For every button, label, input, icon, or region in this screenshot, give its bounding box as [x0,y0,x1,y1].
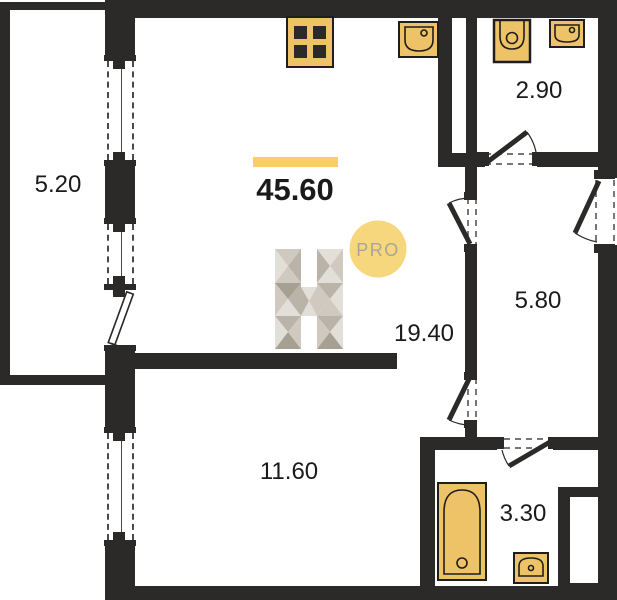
wall-segment [105,0,135,55]
wall-segment [477,152,485,167]
total-area-accent-bar [253,157,338,167]
wall-segment [465,423,477,437]
wall-segment [130,0,617,18]
wall-segment [0,2,112,10]
vent-shaft [452,18,466,153]
wall-segment [558,487,598,497]
balcony-window [107,61,134,160]
window-sill [104,284,136,290]
h-logo-icon [275,249,343,349]
wall-segment [420,437,435,600]
toilet-icon [494,20,530,62]
floor-plan: PRO 45.60 5.20 19.40 2.90 5.80 11.60 3.3… [0,0,617,600]
wall-segment [465,167,477,197]
room-label-bedroom: 11.60 [260,458,318,486]
room-label-hallway: 5.80 [515,287,562,315]
balcony-window [107,224,134,284]
wall-segment [537,152,598,167]
wc-door-icon [481,132,540,166]
wall-segment [105,546,135,600]
hall-bedroom-door-icon [449,372,477,428]
stove-icon [287,17,333,67]
wall-segment [0,2,10,385]
bedroom-window [107,433,134,540]
living-hall-door-icon [449,192,477,252]
entrance-door-icon [575,170,615,253]
bathtub-icon [438,483,486,580]
window-sill [104,345,136,351]
wc-sink-icon [550,20,584,47]
total-area-label: 45.60 [256,172,334,208]
window-sill [104,540,136,546]
pro-badge-label: PRO [356,240,400,260]
bathroom-sink-icon [514,553,548,583]
kitchen-sink-icon [399,22,438,57]
wall-segment [598,0,617,178]
window-sill [104,160,136,166]
room-label-wc: 2.90 [516,77,563,105]
room-label-bathroom: 3.30 [500,500,547,528]
bathroom-door-icon [495,437,556,466]
room-label-balcony: 5.20 [35,171,82,199]
room-label-kitchen-living: 19.40 [394,320,454,348]
wall-segment [465,245,477,373]
wall-segment [105,586,617,600]
balcony-door-icon [108,290,133,348]
pro-badge: PRO [350,221,407,278]
wall-segment [553,437,598,450]
wall-segment [598,245,617,600]
wall-segment [105,353,397,369]
wall-segment [558,583,598,600]
wall-segment [0,375,107,385]
wall-segment [105,166,135,218]
